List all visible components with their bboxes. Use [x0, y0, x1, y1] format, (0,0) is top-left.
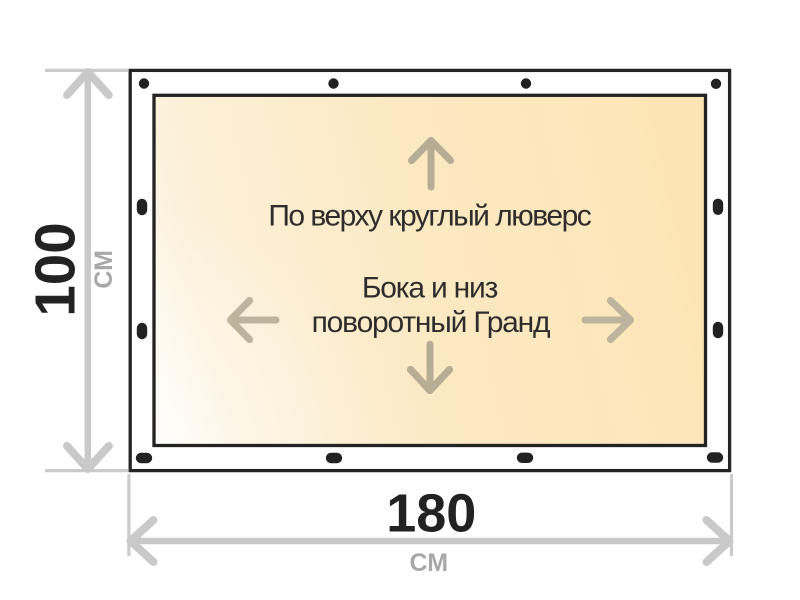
svg-text:180: 180 [386, 484, 476, 544]
svg-text:СМ: СМ [410, 549, 449, 577]
svg-text:Бока и низ: Бока и низ [362, 272, 498, 305]
svg-text:По верху круглый люверс: По верху круглый люверс [268, 199, 591, 232]
svg-text:100: 100 [24, 222, 87, 316]
svg-text:поворотный Гранд: поворотный Гранд [312, 306, 550, 339]
svg-text:СМ: СМ [90, 250, 118, 289]
